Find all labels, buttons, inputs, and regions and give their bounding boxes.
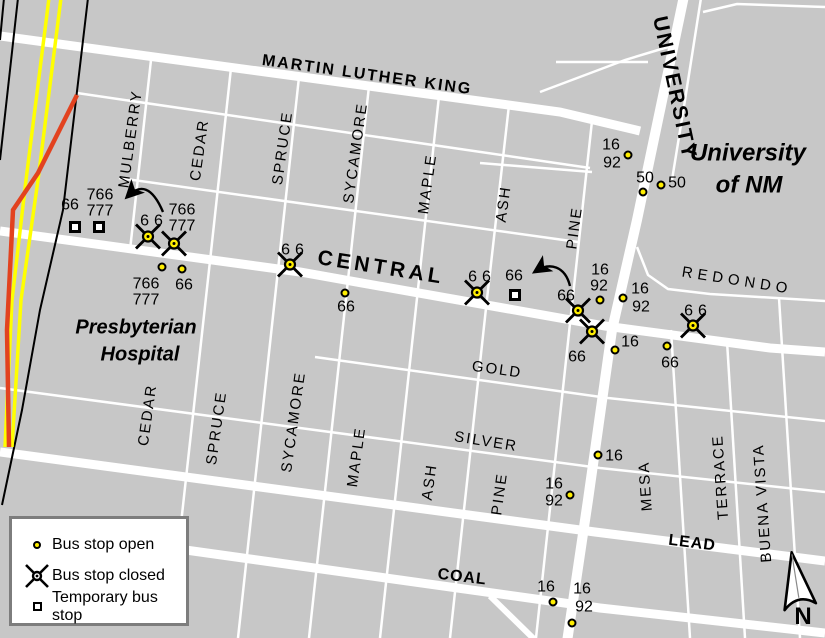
bus-stop-open (341, 289, 350, 298)
legend-row-open: Bus stop open (22, 529, 186, 560)
route-label-16: 16 (631, 282, 649, 299)
bus-stop-open (663, 342, 672, 351)
route-label-16: 16 (545, 477, 563, 494)
bus-stop-open (568, 619, 577, 628)
route-label-66: 66 (557, 289, 575, 306)
road-spruce (238, 77, 299, 638)
bus-stop-open-icon (22, 541, 52, 549)
place-label-hospital: Hospital (101, 345, 180, 366)
route-label-50: 50 (668, 176, 686, 193)
road-top-edge (703, 4, 825, 12)
route-label-66: 66 (281, 243, 309, 260)
bus-stop-open (624, 151, 633, 160)
route-label-92: 92 (545, 494, 563, 511)
place-label-presbyterian: Presbyterian (75, 318, 196, 339)
temporary-bus-stop-icon (22, 602, 52, 611)
bus-stop-open (657, 181, 666, 190)
road-mesa (671, 330, 690, 638)
bus-stop-temporary (69, 221, 81, 233)
route-label-92: 92 (590, 279, 608, 296)
route-label-777: 777 (87, 204, 114, 221)
legend: Bus stop open Bus stop closed Temporary … (9, 516, 189, 626)
route-label-66: 66 (684, 304, 712, 321)
route-label-16: 16 (573, 582, 591, 599)
map-canvas: MARTIN LUTHER KINGCENTRALUNIVERSITYREDON… (0, 0, 825, 638)
route-label-66: 66 (661, 356, 679, 373)
north-label: N (788, 603, 818, 631)
bus-stop-open (619, 294, 628, 303)
legend-label-temporary: Temporary bus stop (52, 589, 186, 625)
railroad-black-right (2, 0, 88, 505)
route-label-92: 92 (603, 156, 621, 173)
road-martin-luther-king (0, 36, 640, 131)
road-gold (315, 357, 825, 421)
street-label-mesa: MESA (636, 460, 655, 511)
relocation-arrow-west (128, 189, 163, 212)
route-label-92: 92 (575, 600, 593, 617)
railroad-black-left (0, 0, 18, 160)
road-silver (0, 388, 825, 492)
route-label-66: 66 (468, 270, 496, 287)
route-label-777: 777 (169, 219, 196, 236)
route-label-16: 16 (537, 580, 555, 597)
place-label-of-nm: of NM (716, 172, 783, 197)
route-label-50: 50 (636, 171, 654, 188)
bus-stop-closed-icon (22, 563, 52, 589)
bus-stop-open (639, 188, 648, 197)
bus-stop-open (178, 265, 187, 274)
route-label-66: 66 (505, 269, 523, 286)
route-label-66: 66 (175, 278, 193, 295)
bus-stop-open (594, 451, 603, 460)
legend-row-closed: Bus stop closed (22, 560, 186, 591)
route-label-16: 16 (621, 335, 639, 352)
legend-label-open: Bus stop open (52, 536, 154, 554)
bus-stop-open (596, 296, 605, 305)
relocation-arrow-east (536, 266, 570, 286)
route-label-16: 16 (605, 449, 623, 466)
legend-label-closed: Bus stop closed (52, 567, 165, 585)
place-label-university: University (690, 140, 806, 165)
bus-stop-open (566, 491, 575, 500)
legend-row-temporary: Temporary bus stop (22, 591, 186, 622)
bus-stop-open (549, 598, 558, 607)
route-label-16: 16 (602, 138, 620, 155)
route-label-66: 66 (61, 198, 79, 215)
bus-stop-closed (577, 317, 607, 352)
bus-stop-open (611, 346, 620, 355)
route-label-66: 66 (568, 350, 586, 367)
bus-stop-open (158, 263, 167, 272)
route-label-66: 66 (337, 300, 355, 317)
road-campus-minor (480, 163, 592, 172)
bus-stop-temporary (509, 289, 521, 301)
route-label-92: 92 (632, 300, 650, 317)
bus-stop-temporary (93, 221, 105, 233)
route-label-777: 777 (133, 293, 160, 310)
road-campus-diagonal (540, 47, 668, 92)
